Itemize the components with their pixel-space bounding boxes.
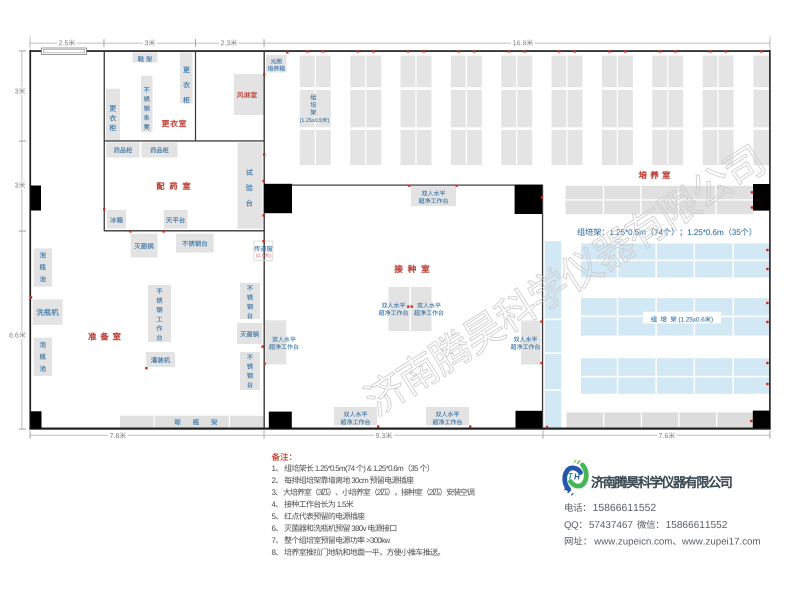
svg-text:T: T xyxy=(568,472,574,481)
svg-text:H: H xyxy=(574,473,580,482)
